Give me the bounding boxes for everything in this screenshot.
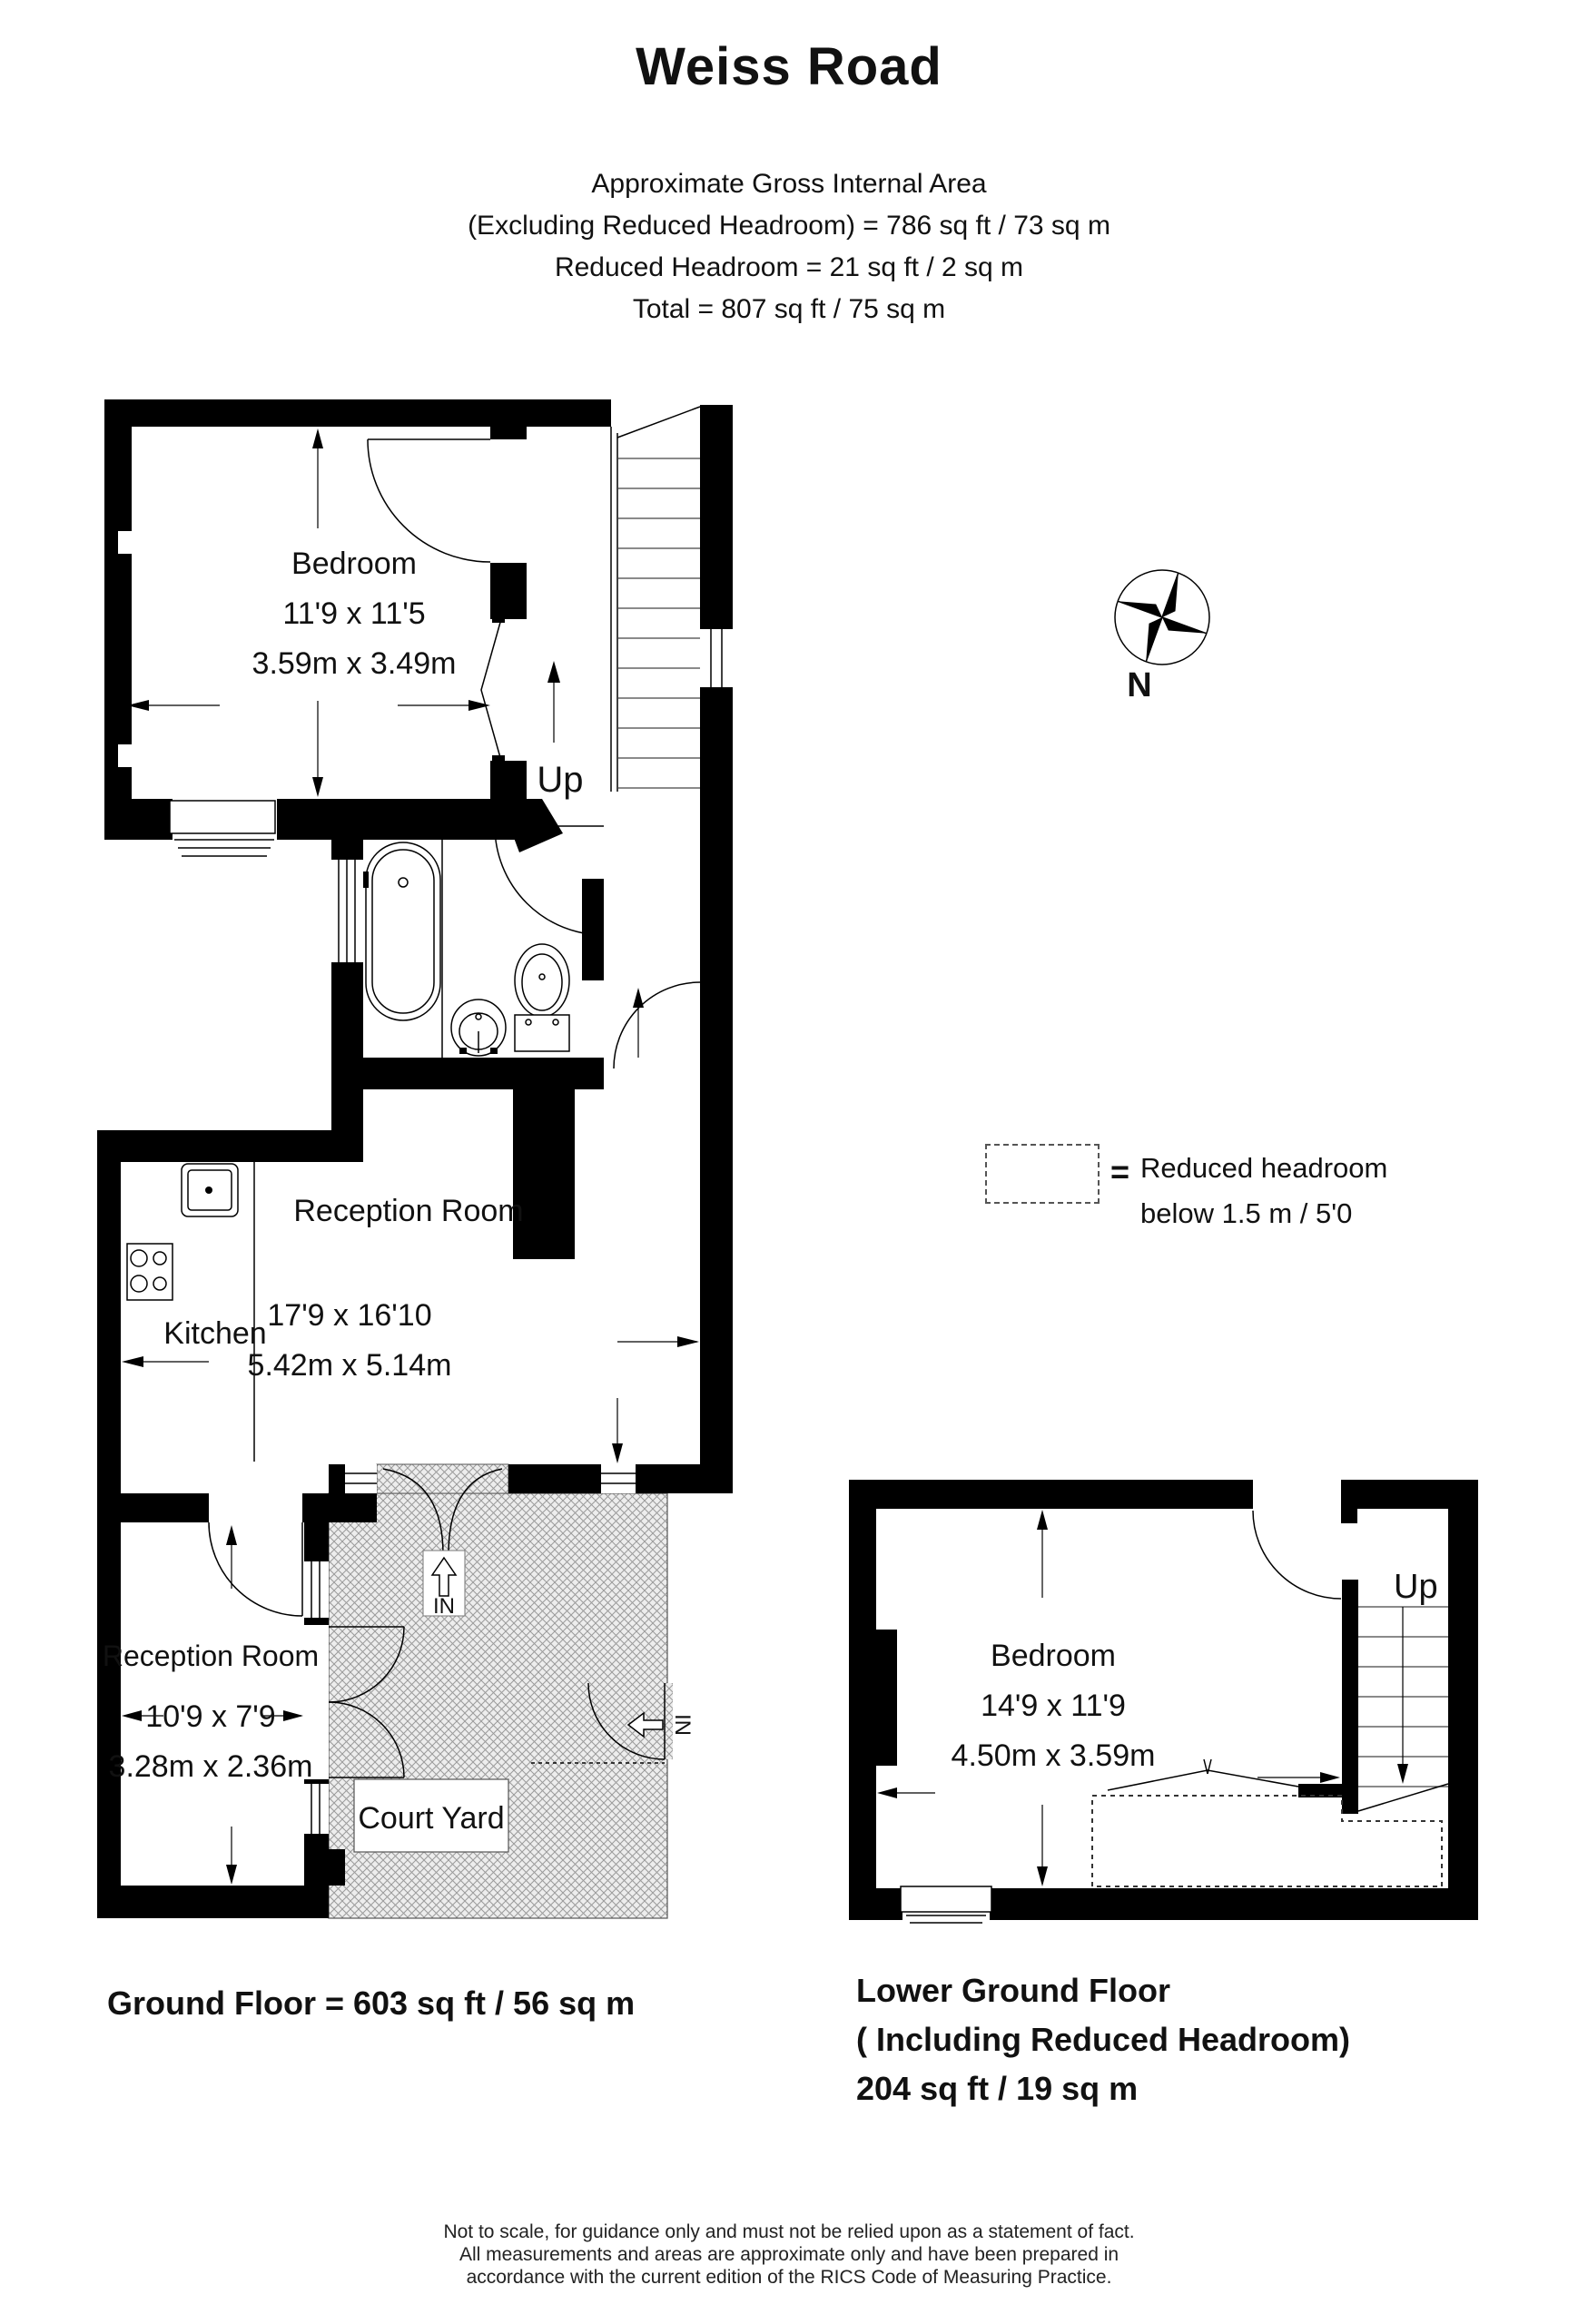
disclaimer-line: accordance with the current edition of t… bbox=[0, 2266, 1578, 2289]
stairs-up-label: Up bbox=[1394, 1568, 1438, 1606]
disclaimer-line: Not to scale, for guidance only and must… bbox=[0, 2221, 1578, 2243]
window bbox=[118, 531, 132, 554]
window bbox=[601, 1464, 636, 1493]
toilet-icon bbox=[515, 944, 569, 1051]
window bbox=[304, 1784, 329, 1834]
reception2-label: Reception Room bbox=[103, 1640, 319, 1672]
sink-icon bbox=[451, 1000, 506, 1056]
lgf-label-line: ( Including Reduced Headroom) bbox=[856, 2015, 1350, 2064]
kitchen-sink-icon bbox=[182, 1157, 238, 1216]
bedroom-label: Bedroom bbox=[991, 1639, 1116, 1673]
legend: = Reduced headroom below 1.5 m / 5'0 bbox=[985, 1144, 1387, 1236]
reduced-headroom-zone bbox=[1092, 1796, 1442, 1886]
reception-label: Reception Room bbox=[293, 1194, 523, 1228]
bedroom-dims-imperial: 14'9 x 11'9 bbox=[981, 1689, 1126, 1723]
staircase bbox=[1358, 1607, 1448, 1811]
courtyard-label: Court Yard bbox=[354, 1779, 508, 1852]
area-line: Approximate Gross Internal Area bbox=[0, 163, 1578, 205]
svg-text:IN: IN bbox=[433, 1594, 455, 1619]
reception2-dims-imperial: 10'9 x 7'9 bbox=[145, 1699, 275, 1734]
reception-dims-imperial: 17'9 x 16'10 bbox=[267, 1298, 431, 1333]
legend-line: Reduced headroom bbox=[1140, 1146, 1387, 1191]
bedroom-dims-imperial: 11'9 x 11'5 bbox=[282, 596, 425, 631]
window bbox=[700, 629, 733, 687]
bay-window bbox=[170, 801, 275, 856]
page-title: Weiss Road bbox=[0, 36, 1578, 97]
door-arc bbox=[368, 439, 490, 562]
lower-ground-floor-area-label: Lower Ground Floor ( Including Reduced H… bbox=[856, 1966, 1350, 2113]
legend-text: Reduced headroom below 1.5 m / 5'0 bbox=[1140, 1146, 1387, 1236]
bedroom-dims-metric: 4.50m x 3.59m bbox=[952, 1738, 1156, 1773]
disclaimer-line: All measurements and areas are approxima… bbox=[0, 2243, 1578, 2266]
door-arc bbox=[209, 1522, 302, 1616]
reception2-dims-metric: 3.28m x 2.36m bbox=[109, 1749, 313, 1784]
kitchen-label: Kitchen bbox=[163, 1316, 266, 1351]
kitchen-fixtures bbox=[127, 1157, 254, 1462]
svg-text:IN: IN bbox=[670, 1714, 695, 1736]
area-line: Total = 807 sq ft / 75 sq m bbox=[0, 289, 1578, 330]
disclaimer: Not to scale, for guidance only and must… bbox=[0, 2221, 1578, 2289]
floorplan-page: { "header": { "title": "Weiss Road", "ar… bbox=[0, 0, 1578, 2324]
hob-icon bbox=[127, 1244, 173, 1300]
lgf-label-line: Lower Ground Floor bbox=[856, 1966, 1350, 2015]
walls bbox=[849, 1480, 1478, 1920]
window bbox=[331, 860, 363, 962]
entrance-front: IN bbox=[423, 1551, 465, 1619]
svg-text:Court Yard: Court Yard bbox=[358, 1801, 504, 1836]
bedroom-dims-metric: 3.59m x 3.49m bbox=[252, 646, 457, 681]
compass-icon: N bbox=[1071, 504, 1262, 713]
door-arc bbox=[1253, 1511, 1341, 1599]
door-arc bbox=[614, 982, 700, 1068]
area-line: (Excluding Reduced Headroom) = 786 sq ft… bbox=[0, 205, 1578, 247]
bedroom-label: Bedroom bbox=[291, 547, 417, 581]
ground-floor-plan: IN IN Court Yard Bedroom 11'9 x 11'5 3.5… bbox=[73, 381, 772, 1925]
window bbox=[304, 1561, 329, 1618]
legend-equals: = bbox=[1110, 1153, 1129, 1191]
room-labels: Up Bedroom 14'9 x 11'9 4.50m x 3.59m bbox=[952, 1568, 1438, 1773]
gross-internal-area-summary: Approximate Gross Internal Area (Excludi… bbox=[0, 163, 1578, 330]
lower-ground-floor-plan: Up Bedroom 14'9 x 11'9 4.50m x 3.59m bbox=[844, 1471, 1480, 1925]
north-label: N bbox=[1127, 666, 1151, 704]
bathtub-icon bbox=[363, 842, 440, 1020]
window bbox=[345, 1464, 377, 1493]
reduced-headroom-swatch bbox=[985, 1144, 1100, 1204]
bay-window bbox=[901, 1886, 991, 1925]
bathroom bbox=[363, 840, 569, 1058]
area-line: Reduced Headroom = 21 sq ft / 2 sq m bbox=[0, 247, 1578, 289]
legend-line: below 1.5 m / 5'0 bbox=[1140, 1191, 1387, 1236]
closet-door bbox=[481, 619, 501, 761]
ground-floor-area-label: Ground Floor = 603 sq ft / 56 sq m bbox=[107, 1984, 635, 2023]
lgf-label-line: 204 sq ft / 19 sq m bbox=[856, 2064, 1350, 2113]
window bbox=[118, 744, 132, 767]
reception-dims-metric: 5.42m x 5.14m bbox=[248, 1348, 452, 1383]
staircase bbox=[547, 407, 700, 792]
stairs-up-label: Up bbox=[537, 760, 583, 800]
